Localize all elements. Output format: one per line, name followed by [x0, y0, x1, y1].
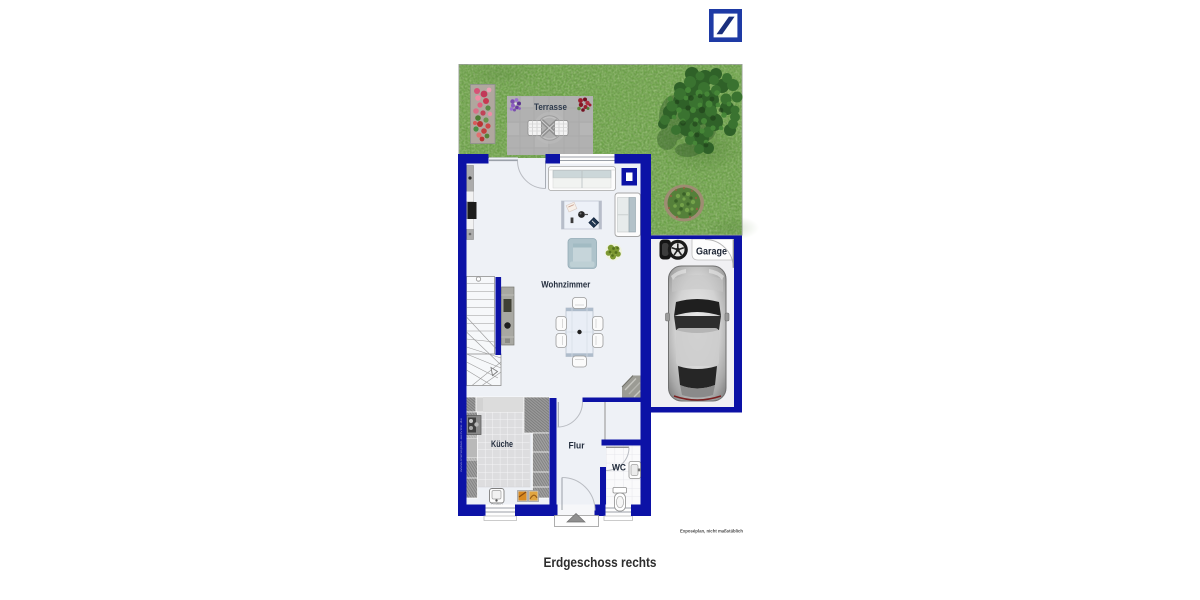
svg-text:WC: WC	[612, 463, 626, 473]
svg-text:www.immoplan-service.de: www.immoplan-service.de	[459, 418, 463, 472]
svg-text:Wohnzimmer: Wohnzimmer	[541, 280, 590, 291]
svg-text:Exposéplan, nicht maßstäblich: Exposéplan, nicht maßstäblich	[680, 529, 743, 534]
svg-text:Terrasse: Terrasse	[534, 102, 567, 112]
svg-text:Küche: Küche	[491, 439, 513, 450]
svg-text:Garage: Garage	[696, 246, 727, 258]
svg-text:Erdgeschoss rechts: Erdgeschoss rechts	[544, 554, 657, 570]
svg-text:Flur: Flur	[569, 441, 585, 452]
